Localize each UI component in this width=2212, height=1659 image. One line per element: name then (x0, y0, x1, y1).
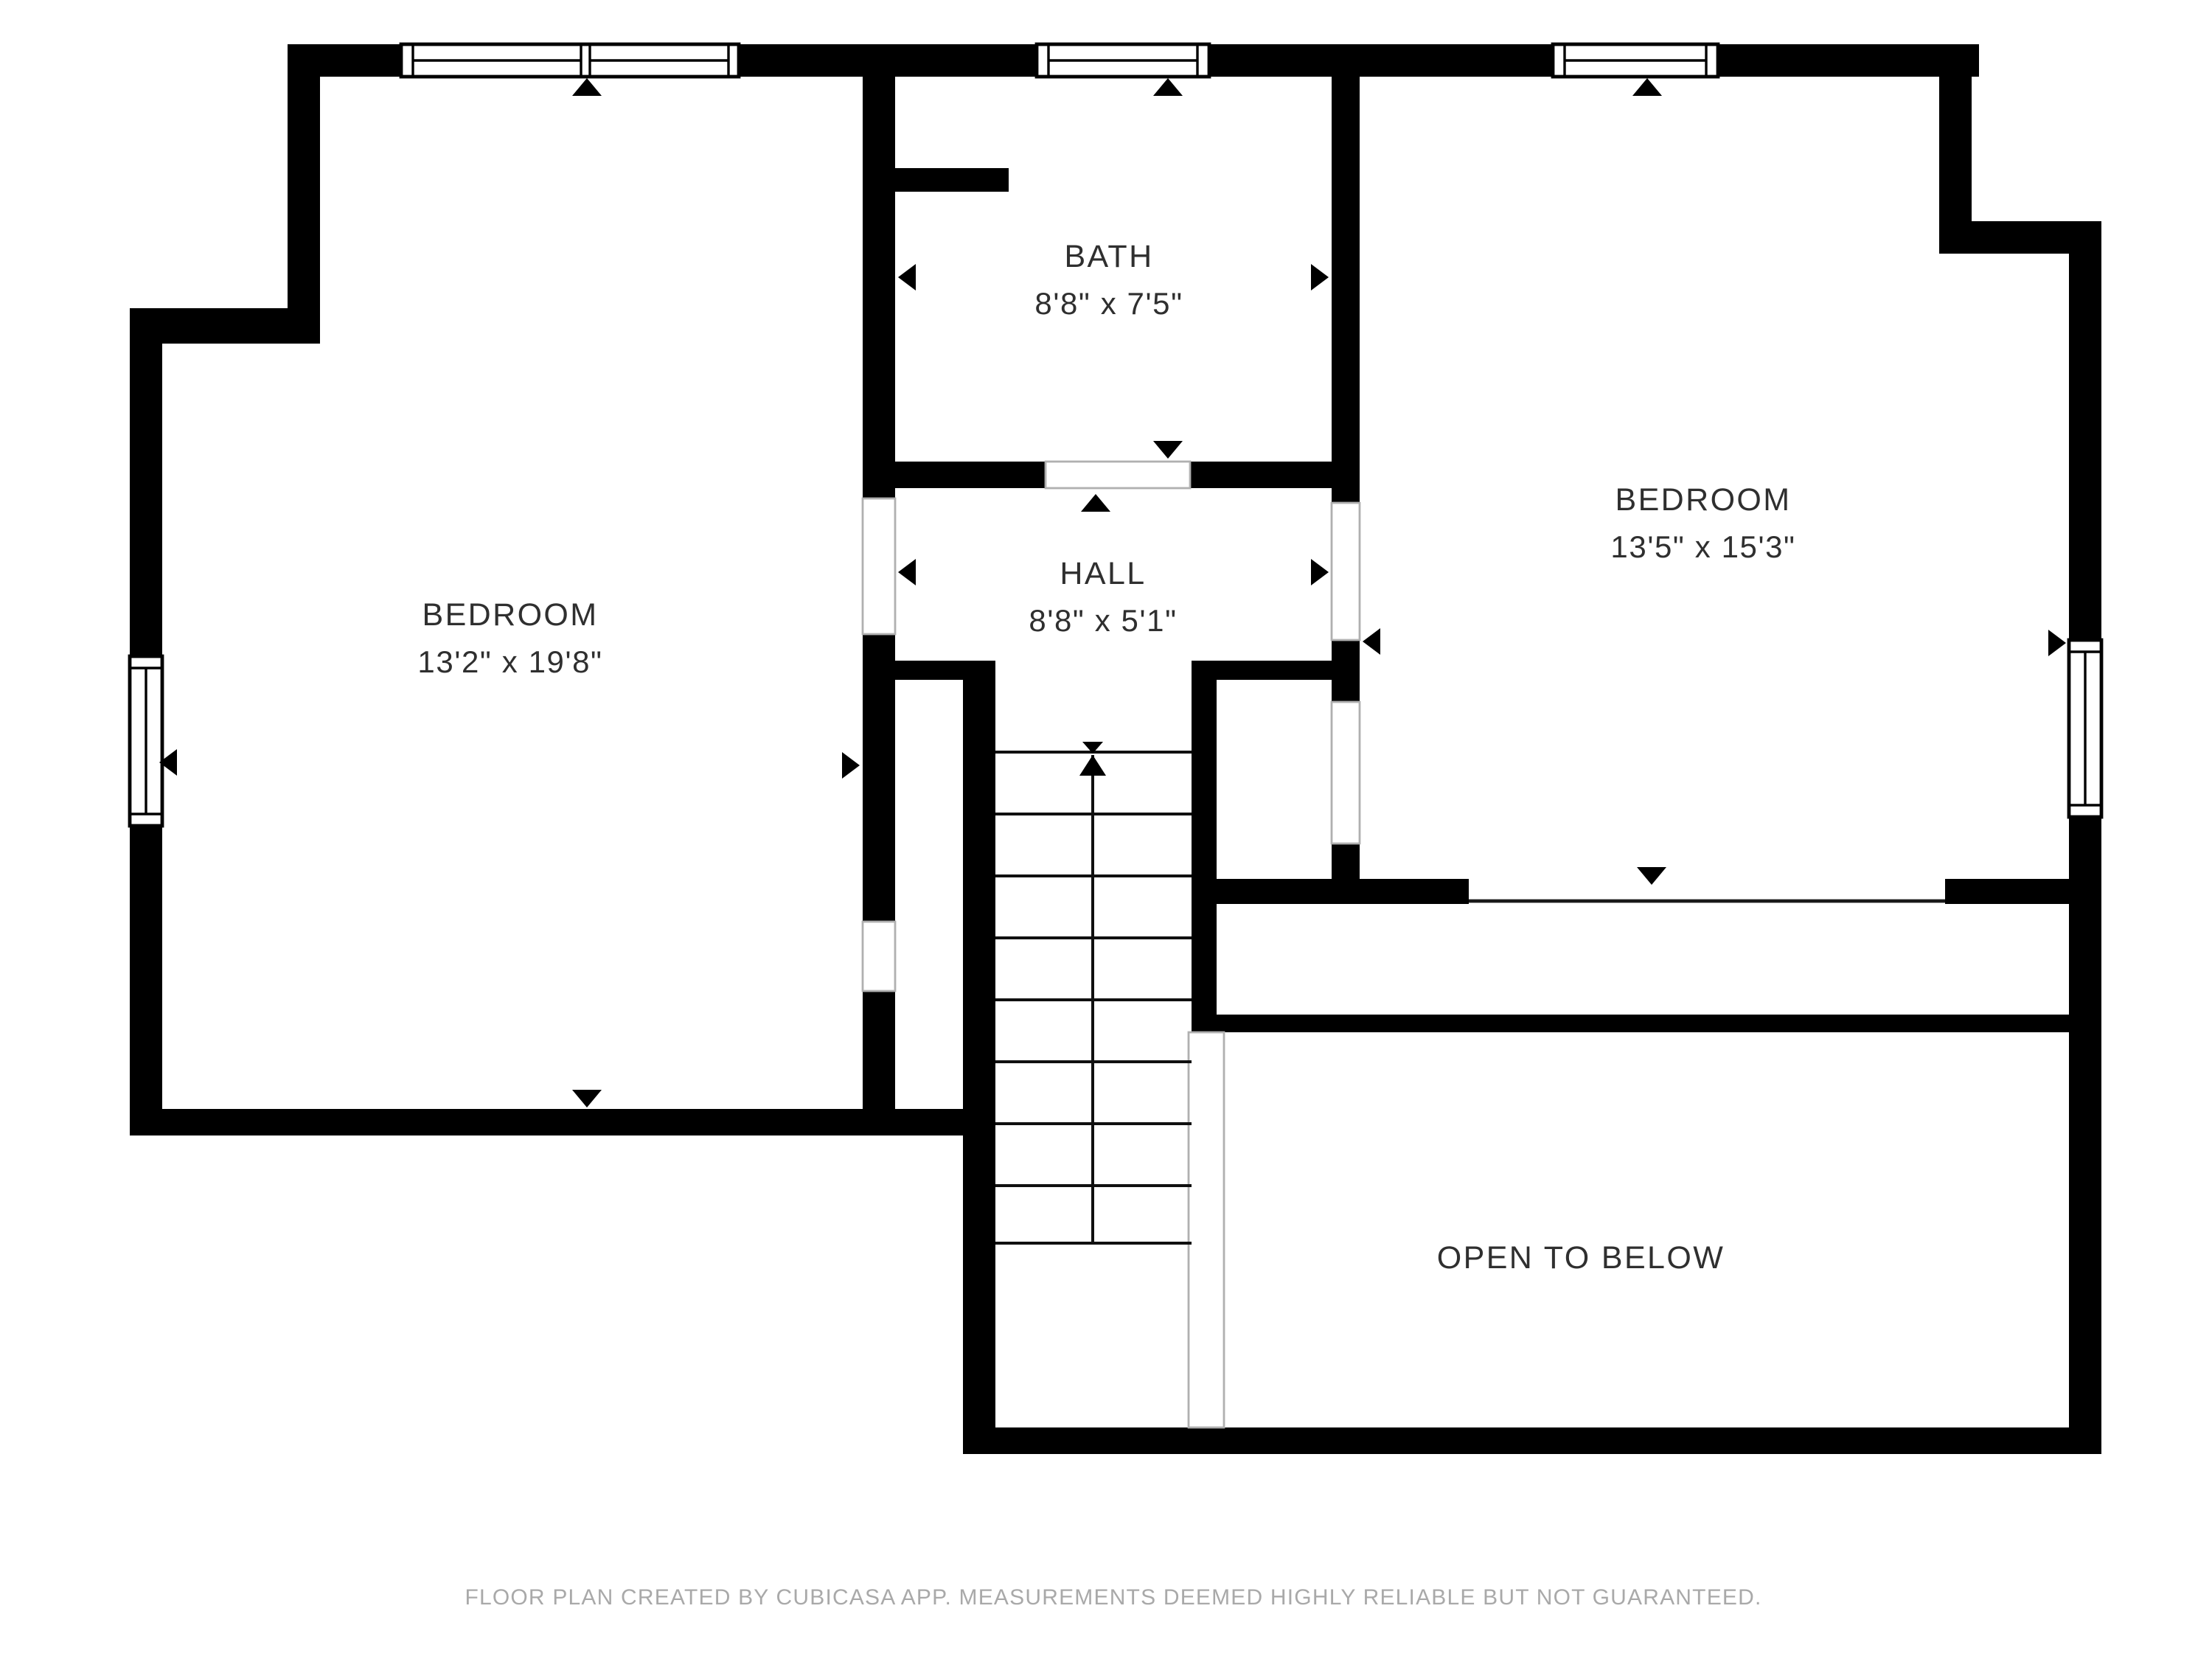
room-dimensions: 8'8" x 5'1" (1029, 603, 1177, 638)
room-bedroom-right: BEDROOM 13'5" x 15'3" (1610, 482, 1795, 564)
railing-gap-right (1332, 702, 1360, 844)
measure-arrow-icon (1363, 628, 1380, 655)
door-opening-bedroom-left (863, 498, 895, 634)
window-marker-icon (1153, 78, 1183, 96)
window-icon (1553, 44, 1718, 77)
windows (130, 44, 2101, 826)
door-opening-bedroom-right (1332, 503, 1360, 640)
measure-arrow-icon (898, 264, 916, 291)
railing-gap-stairwell (1189, 1032, 1224, 1427)
room-bath: BATH 8'8" x 7'5" (1034, 239, 1183, 321)
window-icon (401, 44, 739, 77)
door-marker-icon (572, 1090, 602, 1107)
room-hall: HALL 8'8" x 5'1" (1029, 556, 1177, 638)
wall-bedroom-right-bottom-a (1217, 879, 1469, 904)
measure-arrow-icon (1311, 559, 1329, 585)
room-label: HALL (1060, 556, 1146, 591)
opening-marker-icon (1637, 867, 1666, 885)
stair-up-arrow-icon (1079, 742, 1106, 776)
window-marker-icon (572, 78, 602, 96)
wall-hall-bottom-right (1192, 661, 1360, 680)
floor-plan-svg: BEDROOM 13'2" x 19'8" BATH 8'8" x 7'5" H… (0, 0, 2212, 1659)
stairs (995, 742, 1192, 1243)
wall-bottom (963, 1427, 2101, 1454)
room-dimensions: 13'2" x 19'8" (417, 644, 602, 679)
room-dimensions: 8'8" x 7'5" (1034, 286, 1183, 321)
wall-left-upper (288, 44, 320, 308)
window-icon (130, 656, 162, 826)
room-label: BEDROOM (1615, 482, 1792, 518)
room-label: BATH (1064, 239, 1153, 274)
wall-hall-left-c (863, 991, 895, 1109)
wall-hall-right-a (1332, 77, 1360, 503)
wall-bath-bottom-left (863, 462, 1046, 488)
wall-bath-bottom-right (1190, 462, 1360, 488)
measure-arrow-icon (2048, 630, 2066, 656)
room-label: BEDROOM (422, 597, 599, 633)
footer-disclaimer: FLOOR PLAN CREATED BY CUBICASA APP. MEAS… (465, 1585, 1761, 1610)
wall-bedroom-left-bottom (130, 1109, 988, 1135)
railing-gap-left (863, 922, 895, 991)
door-marker-icon (1153, 441, 1183, 459)
room-label: OPEN TO BELOW (1437, 1240, 1725, 1276)
window-marker-icon (1632, 78, 1662, 96)
measure-arrow-icon (1311, 264, 1329, 291)
measure-arrow-icon (898, 559, 916, 585)
stair-treads (995, 752, 1192, 1243)
measure-arrow-icon (842, 752, 860, 779)
wall-hall-right-c (1332, 844, 1360, 879)
room-open-to-below: OPEN TO BELOW (1437, 1240, 1725, 1276)
room-bedroom-left: BEDROOM 13'2" x 19'8" (417, 597, 602, 679)
window-icon (1037, 44, 1209, 77)
markers (159, 78, 2066, 1107)
floor-plan-canvas: BEDROOM 13'2" x 19'8" BATH 8'8" x 7'5" H… (0, 0, 2212, 1659)
window-icon (2069, 640, 2101, 817)
room-dimensions: 13'5" x 15'3" (1610, 529, 1795, 564)
wall-open-below-top (1192, 1015, 2069, 1032)
wall-bath-stub (895, 168, 1009, 192)
wall-stairs-right (1192, 661, 1217, 1032)
door-marker-icon (1081, 494, 1110, 512)
wall-stairs-left (963, 661, 995, 1454)
wall-right-outer (2069, 221, 2101, 1454)
wall-hall-bottom-left (863, 661, 995, 680)
wall-hall-left-a (863, 77, 895, 498)
openings (863, 462, 1945, 1427)
wall-bedroom-right-bottom-b (1945, 879, 2069, 904)
door-opening-bath (1046, 462, 1190, 488)
